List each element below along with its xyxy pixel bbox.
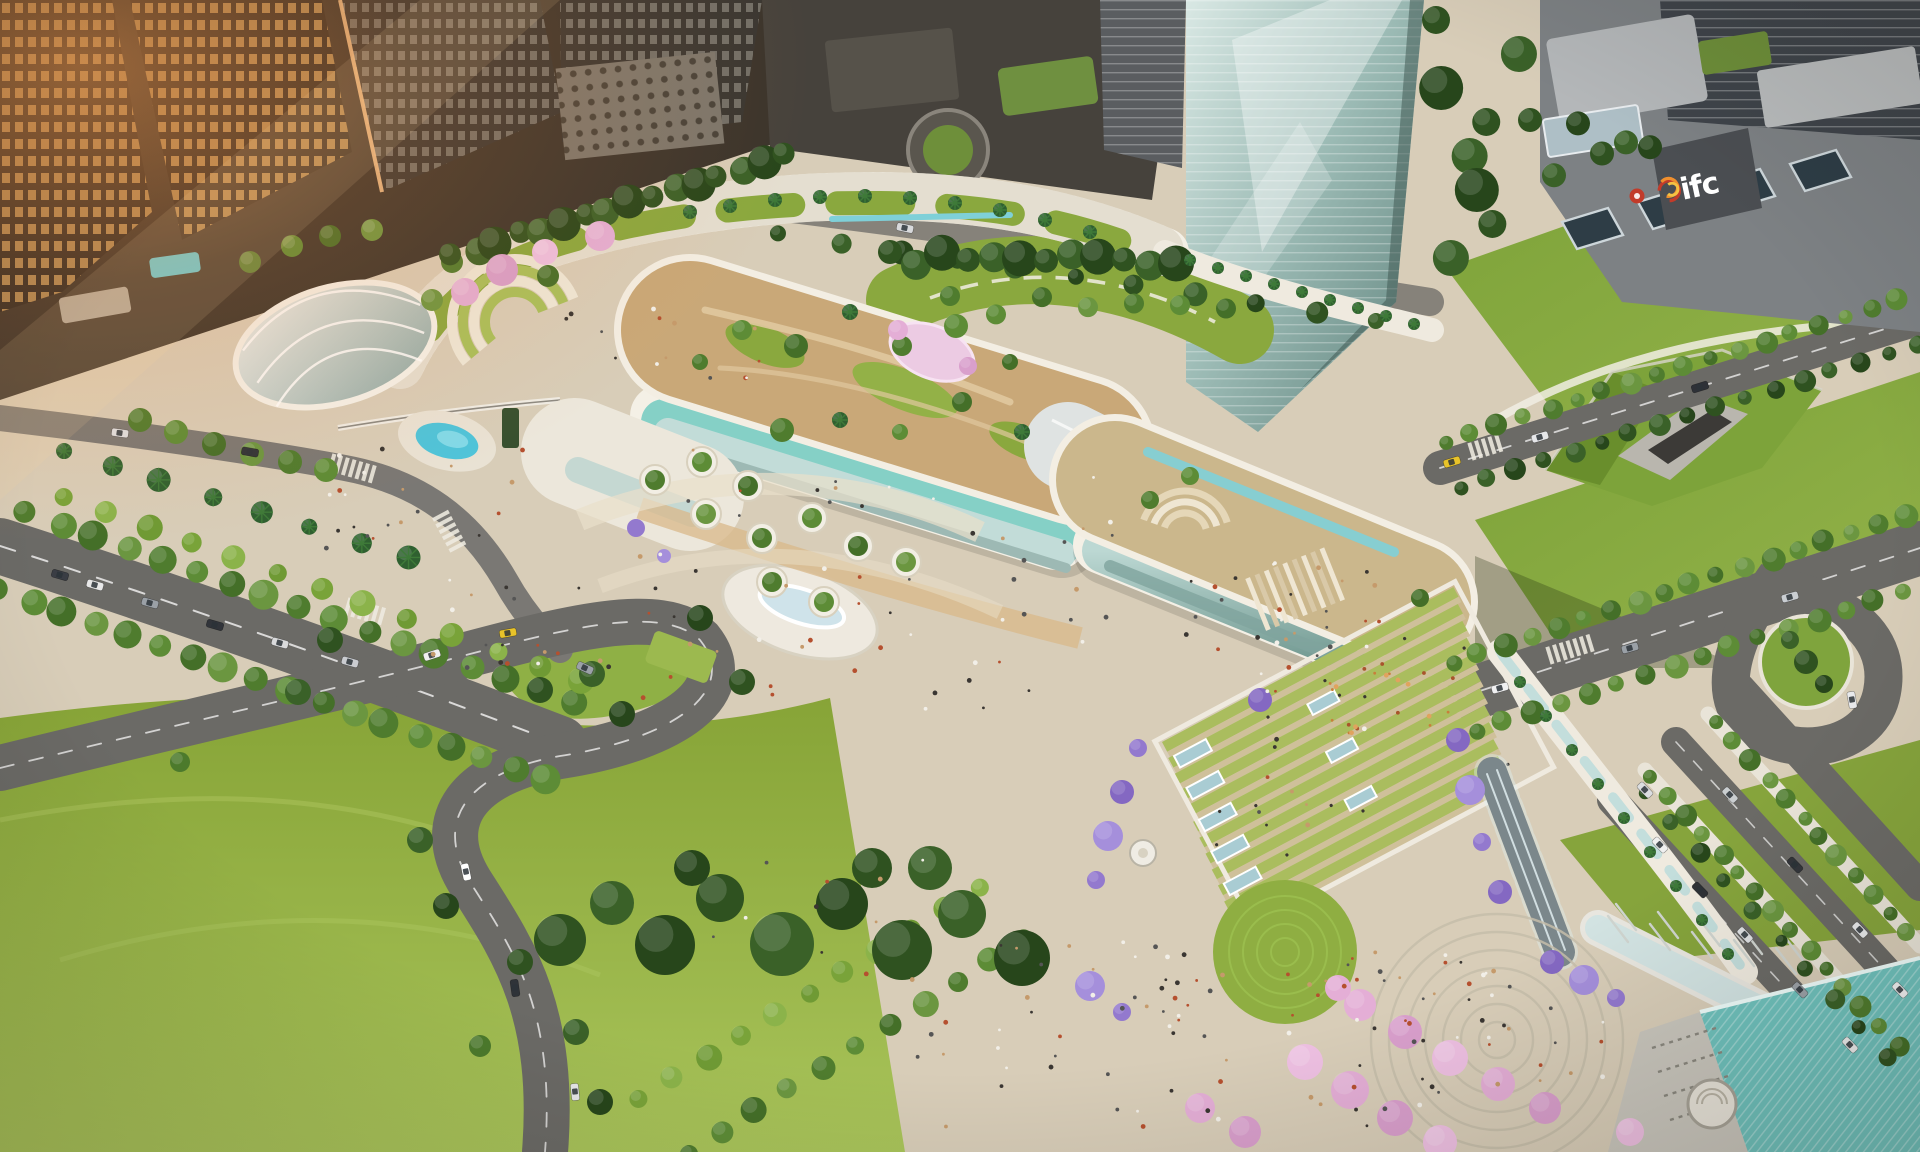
pedestrian (910, 977, 915, 982)
pedestrian (1058, 1034, 1062, 1038)
palm-fronds (1722, 948, 1734, 960)
pedestrian (1488, 1043, 1491, 1046)
pedestrian (1291, 1014, 1294, 1017)
pedestrian (1012, 577, 1017, 582)
pedestrian (1383, 979, 1386, 982)
pedestrian (501, 644, 504, 647)
pedestrian (929, 1032, 934, 1037)
pedestrian (504, 585, 508, 589)
pedestrian (1203, 1034, 1207, 1038)
pedestrian (924, 707, 928, 711)
pedestrian (478, 534, 481, 537)
pedestrian (512, 597, 516, 601)
pedestrian (1305, 803, 1308, 806)
pedestrian (1133, 996, 1137, 1000)
pedestrian (784, 584, 788, 588)
pedestrian (651, 307, 656, 312)
pedestrian (1260, 672, 1263, 675)
pedestrian (943, 1020, 948, 1025)
pedestrian (825, 880, 829, 884)
pedestrian (1092, 476, 1095, 479)
pedestrian (1331, 688, 1334, 691)
pedestrian (1373, 951, 1377, 955)
pedestrian (1106, 1072, 1110, 1076)
pedestrian (470, 593, 473, 596)
pedestrian (1220, 973, 1225, 978)
pedestrian (765, 861, 769, 865)
pedestrian (1377, 620, 1381, 624)
pedestrian (1421, 1039, 1425, 1043)
pedestrian (577, 587, 580, 590)
round-structure (1688, 1080, 1736, 1128)
pedestrian (1162, 1010, 1165, 1013)
pedestrian (1184, 632, 1189, 637)
pedestrian (1182, 952, 1187, 957)
pedestrian (1293, 632, 1296, 635)
pedestrian (1412, 1039, 1417, 1044)
pedestrian (1351, 957, 1354, 960)
pedestrian (362, 471, 366, 475)
pedestrian (1001, 618, 1005, 622)
pedestrian (1120, 1006, 1125, 1011)
pedestrian (672, 321, 677, 326)
pedestrian (982, 706, 985, 709)
pedestrian (820, 951, 823, 954)
pedestrian (1398, 976, 1401, 979)
pedestrian (655, 362, 659, 366)
palm-fronds (103, 456, 123, 476)
pedestrian (1115, 1108, 1119, 1112)
pedestrian (1319, 1102, 1323, 1106)
pedestrian (878, 877, 883, 882)
pedestrian (1384, 673, 1389, 678)
palm-fronds (301, 519, 317, 535)
pedestrian (1355, 1018, 1359, 1022)
pedestrian (1234, 576, 1238, 580)
pedestrian (1422, 671, 1426, 675)
palm-fronds (1540, 710, 1552, 722)
palm-fronds (1566, 744, 1578, 756)
pedestrian (921, 859, 924, 862)
pedestrian (600, 330, 603, 333)
pedestrian (598, 658, 603, 663)
pedestrian (1355, 978, 1359, 982)
pedestrian (1274, 737, 1279, 742)
pedestrian (1600, 1074, 1605, 1079)
pedestrian (498, 660, 503, 665)
purple-flowerbed (657, 549, 671, 563)
pedestrian (1378, 969, 1383, 974)
pedestrian (996, 1046, 1000, 1050)
pedestrian (328, 493, 332, 497)
pedestrian (942, 1053, 945, 1056)
pedestrian (1352, 1085, 1357, 1090)
pedestrian (1153, 944, 1158, 949)
palm-fronds (1268, 278, 1280, 290)
pedestrian (852, 668, 857, 673)
pedestrian (1362, 726, 1367, 731)
pedestrian (1063, 540, 1067, 544)
pedestrian (998, 1028, 1001, 1031)
pedestrian (450, 607, 455, 612)
pedestrian (648, 612, 651, 615)
pedestrian (998, 661, 1001, 664)
pedestrian (1396, 711, 1400, 715)
palm-fronds (1296, 286, 1308, 298)
pedestrian (822, 566, 827, 571)
pedestrian (1001, 536, 1005, 540)
palm-fronds (1083, 225, 1097, 239)
pedestrian (337, 488, 342, 493)
pedestrian (1039, 963, 1043, 967)
pedestrian (688, 642, 693, 647)
pedestrian (1406, 682, 1411, 687)
pedestrian (1136, 1110, 1139, 1113)
pedestrian (875, 920, 878, 923)
pedestrian (1272, 563, 1275, 566)
pedestrian (864, 971, 869, 976)
pedestrian (1456, 1036, 1459, 1039)
pedestrian (1328, 644, 1333, 649)
pedestrian (1170, 1089, 1174, 1093)
pedestrian (365, 534, 369, 538)
pedestrian (1255, 635, 1260, 640)
pedestrian (1290, 790, 1294, 794)
palm-fronds (1184, 254, 1196, 266)
pedestrian (1443, 961, 1447, 965)
pedestrian (1427, 714, 1432, 719)
pedestrian (1429, 724, 1432, 727)
pedestrian (1216, 647, 1220, 651)
pedestrian (1134, 955, 1137, 958)
palm-fronds (1670, 880, 1682, 892)
car (570, 1083, 580, 1101)
pedestrian (1353, 724, 1358, 729)
pedestrian (738, 514, 741, 517)
palm-fronds (1014, 424, 1030, 440)
pedestrian (638, 554, 643, 559)
pedestrian (1104, 615, 1109, 620)
pedestrian (1186, 1004, 1189, 1007)
pedestrian (606, 664, 611, 669)
pedestrian (1347, 963, 1350, 966)
pedestrian (814, 904, 819, 909)
pedestrian (399, 520, 403, 524)
pedestrian (834, 480, 837, 483)
pedestrian (658, 553, 662, 557)
pedestrian (800, 645, 804, 649)
pedestrian (448, 579, 451, 582)
pedestrian (1417, 1103, 1422, 1108)
pedestrian (1284, 637, 1288, 641)
pedestrian (510, 480, 515, 485)
pedestrian (1358, 1064, 1361, 1067)
pedestrian (1030, 1011, 1033, 1014)
pedestrian (1366, 1124, 1369, 1127)
pedestrian (1121, 940, 1125, 944)
pedestrian (757, 637, 762, 642)
pedestrian (380, 447, 385, 452)
pedestrian (1365, 570, 1369, 574)
pedestrian (1487, 1036, 1491, 1040)
pedestrian (1286, 973, 1290, 977)
pedestrian (1216, 1117, 1221, 1122)
pedestrian (1341, 580, 1344, 583)
pedestrian (1307, 982, 1312, 987)
pedestrian (1396, 678, 1401, 683)
pedestrian (1265, 689, 1269, 693)
pedestrian (770, 693, 774, 697)
pedestrian (769, 684, 773, 688)
pedestrian (1159, 986, 1164, 991)
pedestrian (497, 511, 501, 515)
pedestrian (1022, 612, 1027, 617)
pedestrian (1220, 598, 1224, 602)
pedestrian (1015, 947, 1018, 950)
dotted-facade-building (556, 52, 725, 160)
pedestrian (465, 665, 470, 670)
aerial-render: ifc (0, 0, 1920, 1152)
pedestrian (1430, 1084, 1435, 1089)
pedestrian (909, 633, 912, 636)
pedestrian (1354, 1108, 1358, 1112)
pedestrian (1468, 998, 1471, 1001)
pedestrian (1316, 565, 1321, 570)
pedestrian (1164, 978, 1167, 981)
pedestrian (1422, 997, 1425, 1000)
pedestrian (967, 678, 972, 683)
pedestrian (1145, 1004, 1149, 1008)
pedestrian (686, 499, 690, 503)
pedestrian (1602, 1021, 1605, 1024)
pedestrian (1495, 1082, 1500, 1087)
palm-fronds (842, 304, 858, 320)
pedestrian (485, 644, 488, 647)
pedestrian (889, 611, 892, 614)
pedestrian (1074, 587, 1079, 592)
pedestrian (1325, 626, 1328, 629)
palm-fronds (1380, 310, 1392, 322)
pedestrian (344, 493, 347, 496)
pedestrian (1362, 667, 1366, 671)
pedestrian (1141, 1124, 1146, 1129)
pedestrian (1177, 1019, 1180, 1022)
pedestrian (1365, 645, 1369, 649)
pedestrian (1599, 1040, 1603, 1044)
palm-fronds (1038, 213, 1052, 227)
pedestrian (1195, 979, 1198, 982)
pedestrian (1372, 583, 1377, 588)
pedestrian (1334, 684, 1339, 689)
palm-fronds (1514, 676, 1526, 688)
pedestrian (1287, 1031, 1292, 1036)
palm-fronds (858, 189, 872, 203)
pedestrian (543, 650, 547, 654)
pedestrian (641, 695, 646, 700)
pedestrian (1507, 1027, 1511, 1031)
pedestrian (1081, 640, 1085, 644)
pedestrian (1205, 1108, 1210, 1113)
pedestrian (1208, 989, 1213, 994)
pedestrian (1173, 996, 1178, 1001)
pedestrian (815, 488, 819, 492)
pedestrian (1407, 1021, 1412, 1026)
pedestrian (536, 644, 539, 647)
palm-fronds (1696, 914, 1708, 926)
pedestrian (1277, 607, 1282, 612)
pedestrian (1383, 1106, 1388, 1111)
palm-fronds (1240, 270, 1252, 282)
pedestrian (908, 578, 911, 581)
palm-fronds (1618, 812, 1630, 824)
palm-fronds (948, 196, 962, 210)
pedestrian (1433, 992, 1436, 995)
pedestrian (536, 662, 540, 666)
pedestrian (916, 1055, 920, 1059)
pedestrian (1092, 968, 1095, 971)
palm-fronds (1212, 262, 1224, 274)
pedestrian (1459, 961, 1462, 964)
palm-fronds (903, 191, 917, 205)
pedestrian (744, 916, 748, 920)
pedestrian (716, 650, 719, 653)
pedestrian (1349, 730, 1354, 735)
pedestrian (401, 488, 404, 491)
pedestrian (1168, 1024, 1172, 1028)
pedestrian (1305, 823, 1310, 828)
palm-fronds (56, 443, 72, 459)
pedestrian (372, 537, 375, 540)
pedestrian (353, 526, 356, 529)
pedestrian (1373, 672, 1376, 675)
pedestrian (944, 1125, 948, 1129)
pedestrian (1325, 610, 1328, 613)
pedestrian (1213, 584, 1218, 589)
pedestrian (1190, 580, 1193, 583)
pedestrian (1000, 1084, 1004, 1088)
pedestrian (834, 486, 838, 490)
pedestrian (1554, 1041, 1557, 1044)
pedestrian (1404, 1019, 1407, 1022)
pedestrian (324, 546, 329, 551)
palm-fronds (832, 412, 848, 428)
pedestrian (1539, 1079, 1542, 1082)
pedestrian (1054, 1055, 1057, 1058)
circular-lawn (1213, 880, 1357, 1024)
pedestrian (1491, 969, 1496, 974)
pedestrian (692, 449, 695, 452)
pedestrian (1490, 993, 1494, 997)
purple-flowerbed (627, 519, 645, 537)
pedestrian (658, 316, 662, 320)
pedestrian (857, 602, 860, 605)
pedestrian (758, 360, 761, 363)
pedestrian (970, 531, 975, 536)
pedestrian (665, 356, 668, 359)
pedestrian (878, 645, 883, 650)
pedestrian (673, 615, 676, 618)
pedestrian (1309, 1095, 1314, 1100)
pedestrian (858, 575, 862, 579)
pedestrian (1569, 1071, 1573, 1075)
pedestrian (973, 660, 978, 665)
pedestrian (1329, 682, 1332, 685)
pedestrian (654, 586, 658, 590)
pedestrian (569, 311, 574, 316)
pedestrian (1025, 995, 1030, 1000)
pedestrian (1225, 1059, 1228, 1062)
palm-fronds (993, 203, 1007, 217)
pedestrian (933, 691, 938, 696)
pedestrian (614, 357, 617, 360)
palm-fronds (683, 205, 697, 219)
pedestrian (708, 376, 712, 380)
pedestrian (1280, 619, 1283, 622)
pedestrian (1289, 593, 1292, 596)
pedestrian (1539, 1063, 1543, 1067)
pedestrian (1194, 615, 1198, 619)
pedestrian (1275, 640, 1280, 645)
palm-fronds (768, 193, 782, 207)
palm-fronds (813, 190, 827, 204)
palm-fronds (204, 488, 222, 506)
palm-fronds (1644, 846, 1656, 858)
pedestrian (1316, 654, 1319, 657)
pedestrian (505, 661, 510, 666)
pedestrian (387, 524, 390, 527)
palm-fronds (1352, 302, 1364, 314)
pedestrian (808, 638, 813, 643)
scene-image: ifc (0, 0, 1920, 1152)
pedestrian (739, 489, 742, 492)
pedestrian (828, 500, 832, 504)
pedestrian (1331, 719, 1334, 722)
pedestrian (1508, 985, 1512, 989)
pedestrian (1108, 520, 1113, 525)
pedestrian (556, 651, 560, 655)
pedestrian (1069, 618, 1073, 622)
palm-fronds (1408, 318, 1420, 330)
pedestrian (1380, 662, 1384, 666)
pedestrian (1274, 690, 1277, 693)
palm-fronds (147, 468, 171, 492)
pedestrian (1421, 1078, 1424, 1081)
round-tower-green-roof (923, 125, 973, 175)
pedestrian (450, 465, 453, 468)
pedestrian (416, 510, 420, 514)
pedestrian (1171, 1031, 1175, 1035)
pedestrian (1502, 1024, 1506, 1028)
pedestrian (564, 317, 568, 321)
pedestrian (1005, 1066, 1008, 1069)
pedestrian (1022, 558, 1027, 563)
pedestrian (1342, 984, 1347, 989)
kiosk-tower (502, 408, 519, 448)
pedestrian (336, 529, 340, 533)
pedestrian (753, 327, 757, 331)
pedestrian (520, 448, 525, 453)
pedestrian (745, 376, 748, 379)
pedestrian (1000, 944, 1003, 947)
pedestrian (337, 453, 342, 458)
palm-fronds (1592, 778, 1604, 790)
pedestrian (431, 652, 436, 657)
pedestrian (669, 675, 673, 679)
pedestrian (1444, 953, 1448, 957)
pedestrian (1273, 745, 1277, 749)
pedestrian (1437, 1091, 1440, 1094)
pedestrian (712, 935, 715, 938)
